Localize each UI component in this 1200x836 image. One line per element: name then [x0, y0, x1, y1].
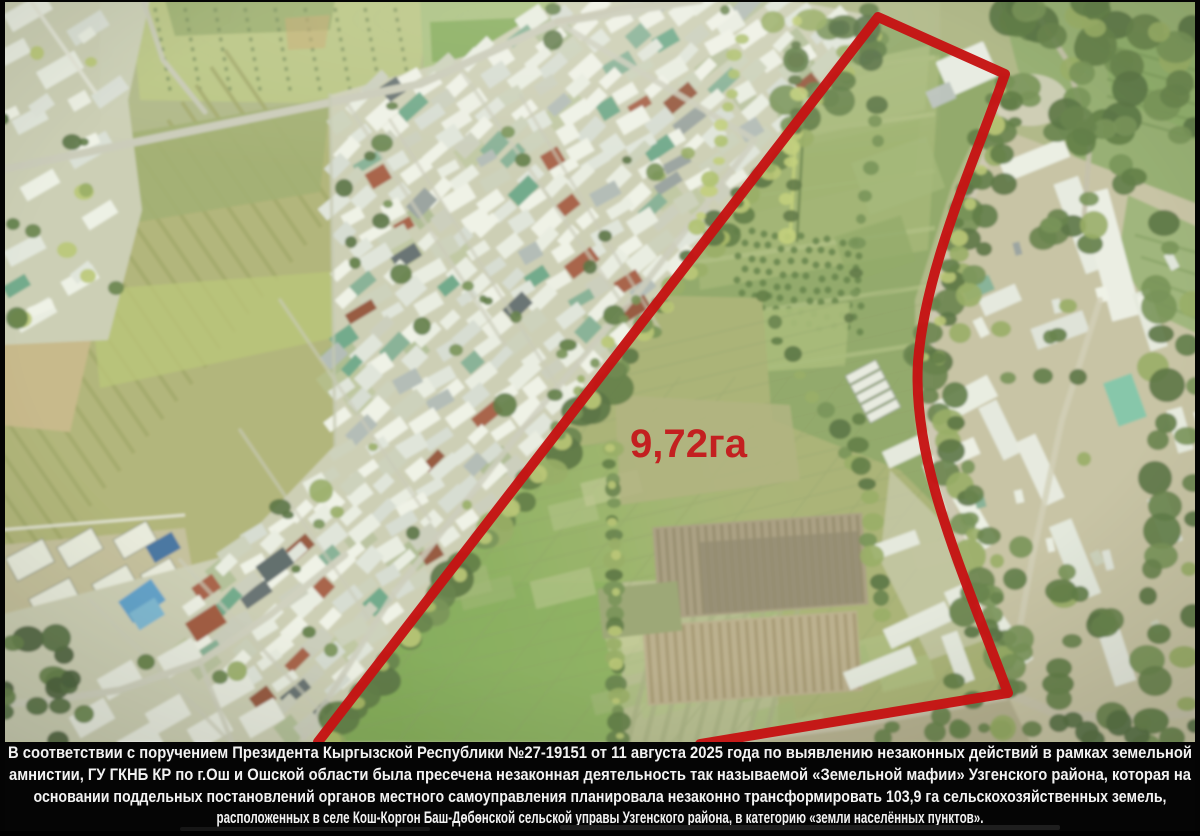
svg-text:9,72га: 9,72га [630, 422, 748, 466]
svg-text:В соответствии с поручением Пр: В соответствии с поручением Президента К… [8, 744, 1192, 762]
svg-text:расположенных в селе Кош-Корго: расположенных в селе Кош-Коргон Баш-Дөбө… [217, 809, 984, 827]
svg-text:амнистии, ГУ ГКНБ КР по г.Ош и: амнистии, ГУ ГКНБ КР по г.Ош и Ошской об… [9, 766, 1192, 784]
svg-text:основании поддельных постановл: основании поддельных постановлений орган… [34, 788, 1167, 806]
